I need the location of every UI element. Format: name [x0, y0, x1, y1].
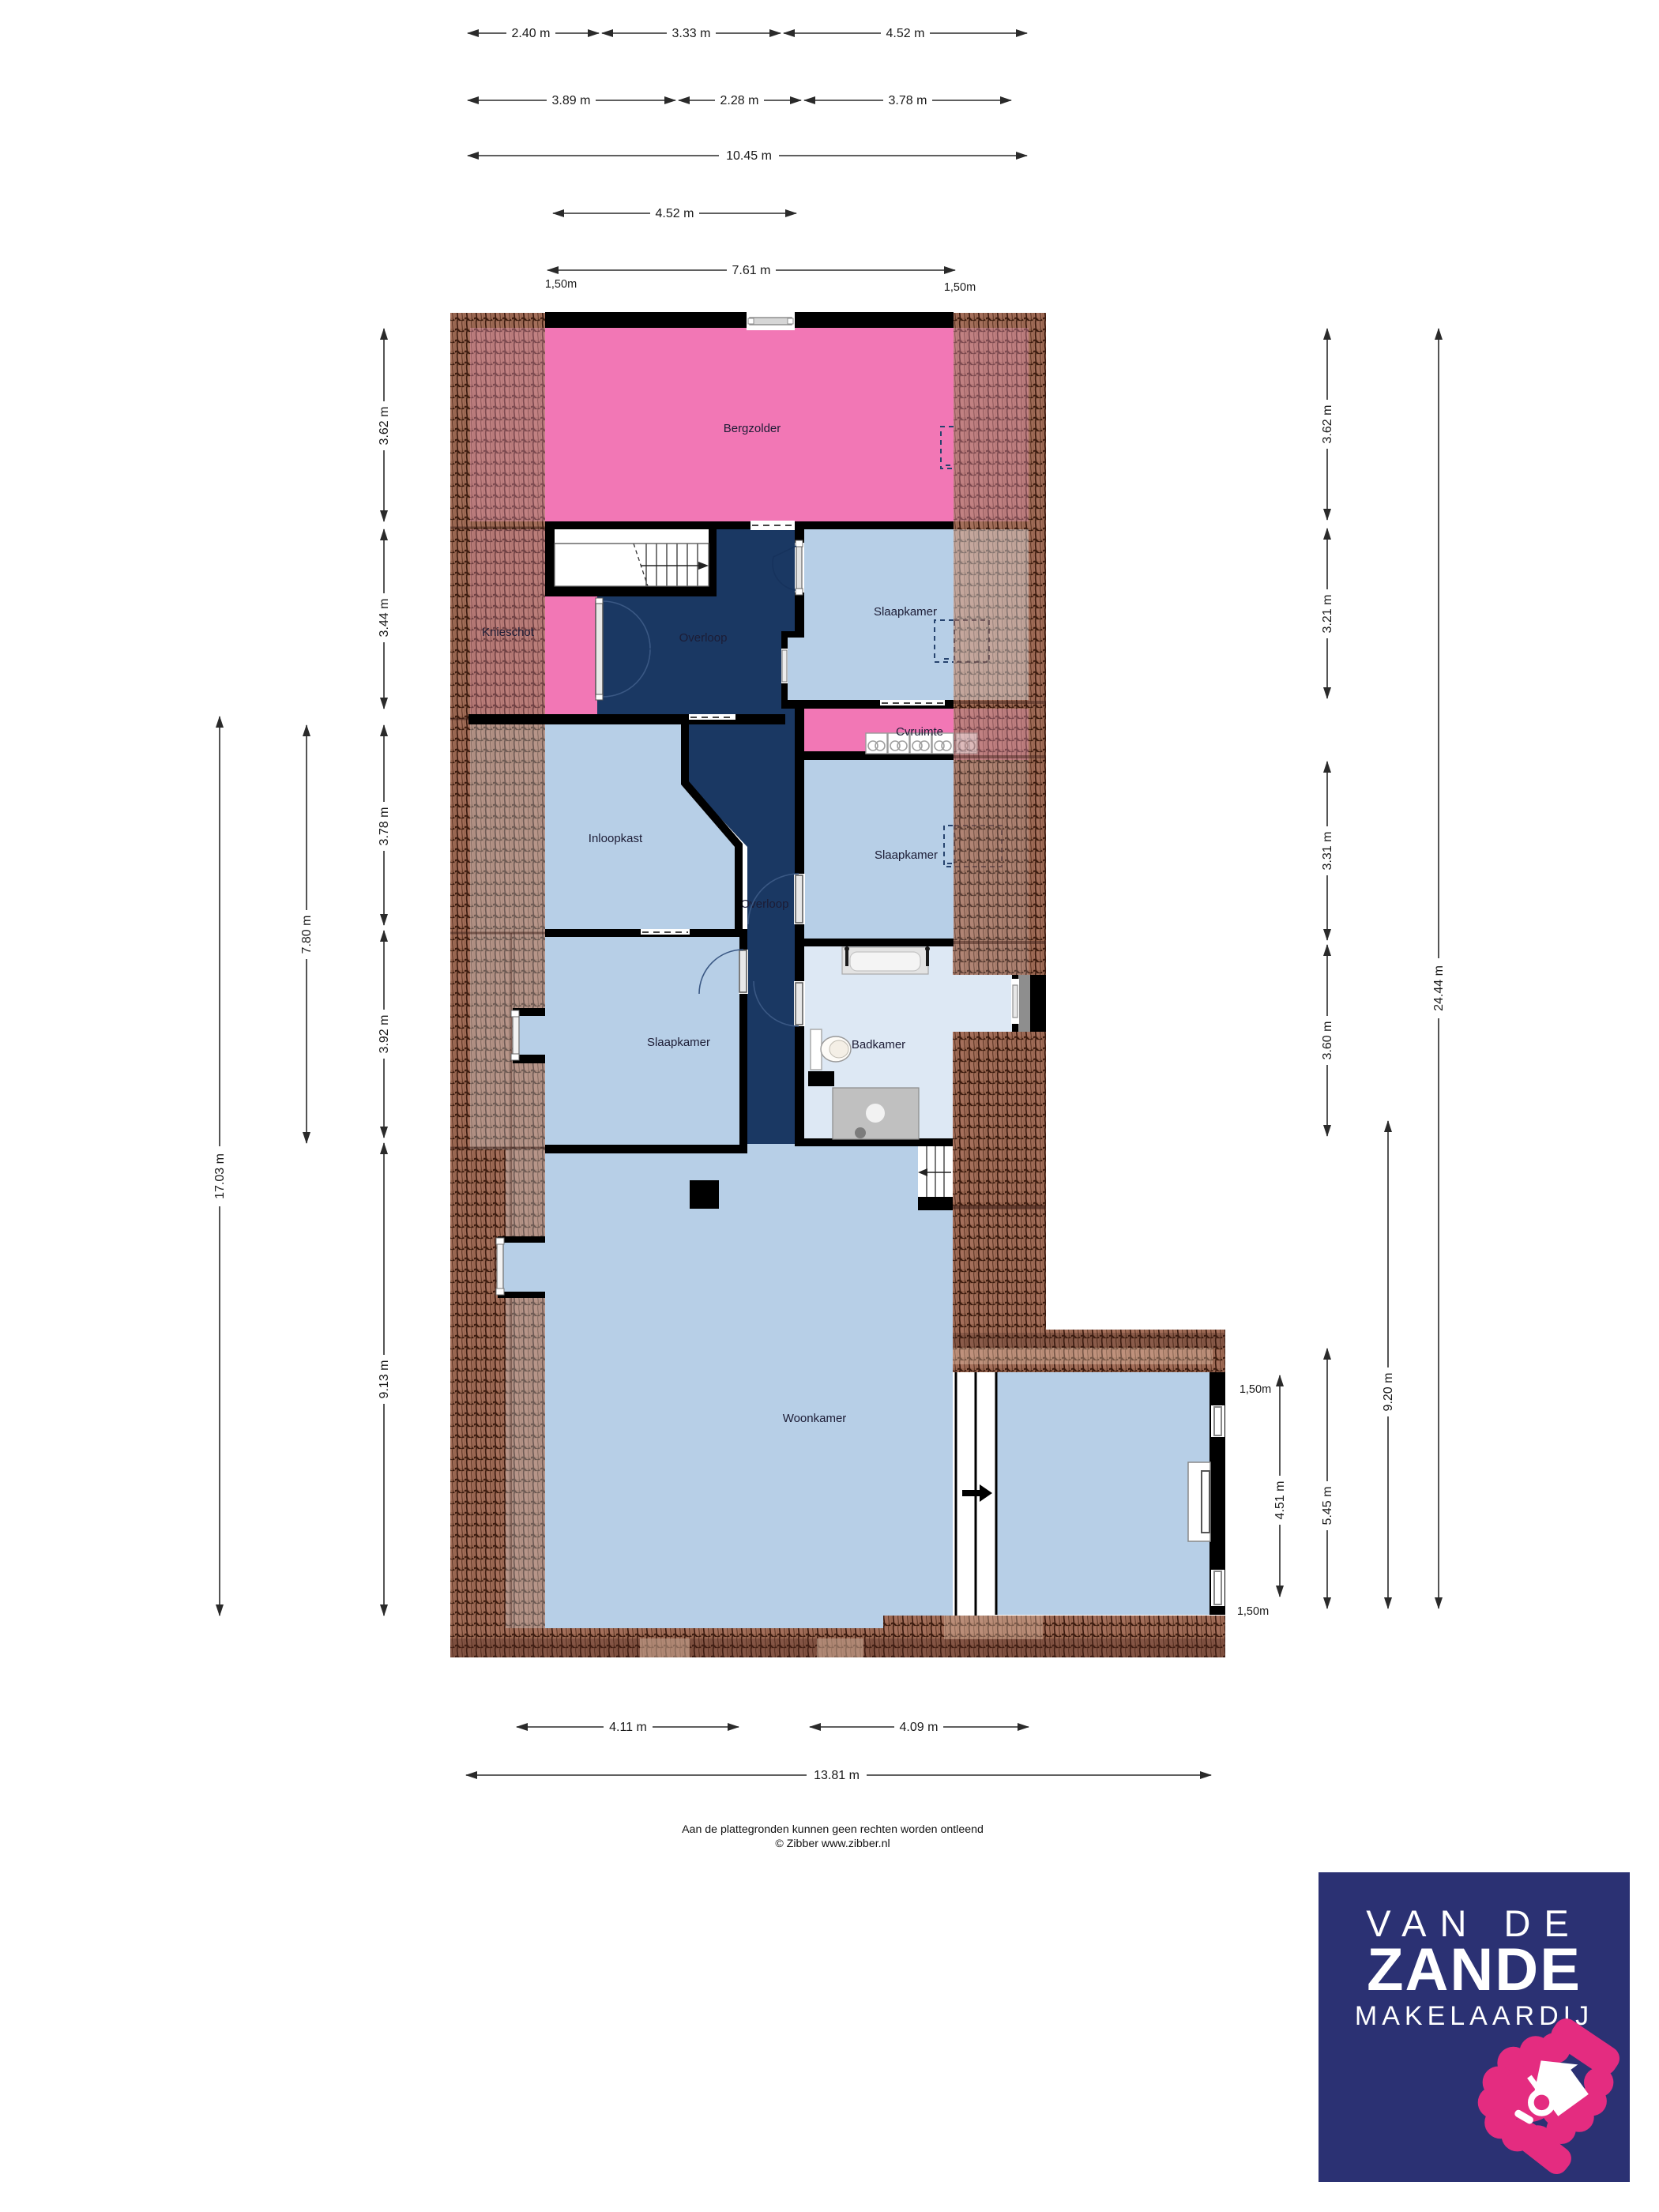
svg-text:10.45 m: 10.45 m [726, 149, 772, 163]
svg-text:7.80 m: 7.80 m [300, 916, 314, 954]
svg-text:3.60 m: 3.60 m [1321, 1021, 1334, 1060]
svg-text:Badkamer: Badkamer [852, 1038, 905, 1051]
svg-text:4.09 m: 4.09 m [900, 1721, 939, 1734]
svg-text:24.44 m: 24.44 m [1432, 965, 1446, 1011]
svg-text:Knieschot: Knieschot [482, 626, 535, 639]
svg-text:Slaapkamer: Slaapkamer [875, 848, 938, 862]
svg-text:3.78 m: 3.78 m [889, 94, 927, 107]
svg-text:Slaapkamer: Slaapkamer [647, 1036, 710, 1049]
svg-text:1,50m: 1,50m [1237, 1605, 1269, 1618]
svg-text:3.92 m: 3.92 m [378, 1015, 391, 1054]
svg-text:17.03 m: 17.03 m [213, 1153, 227, 1199]
svg-text:Woonkamer: Woonkamer [783, 1412, 847, 1425]
svg-text:© Zibber www.zibber.nl: © Zibber www.zibber.nl [775, 1838, 890, 1850]
svg-text:ZANDE: ZANDE [1367, 1936, 1582, 2003]
svg-text:Inloopkast: Inloopkast [589, 832, 643, 845]
svg-text:Aan de plattegronden kunnen ge: Aan de plattegronden kunnen geen rechten… [682, 1823, 984, 1836]
svg-text:3.33 m: 3.33 m [672, 27, 711, 40]
svg-text:3.21 m: 3.21 m [1321, 595, 1334, 634]
svg-text:Overloop: Overloop [679, 631, 728, 645]
svg-text:3.62 m: 3.62 m [378, 407, 391, 446]
svg-text:1,50m: 1,50m [545, 278, 577, 291]
svg-text:4.51 m: 4.51 m [1273, 1481, 1287, 1520]
svg-text:3.31 m: 3.31 m [1321, 832, 1334, 871]
svg-text:7.61 m: 7.61 m [732, 264, 771, 277]
svg-text:3.44 m: 3.44 m [378, 599, 391, 638]
svg-text:Slaapkamer: Slaapkamer [874, 605, 937, 619]
svg-text:13.81 m: 13.81 m [814, 1769, 860, 1782]
svg-text:Cvruimte: Cvruimte [896, 725, 943, 739]
svg-text:5.45 m: 5.45 m [1321, 1487, 1334, 1525]
svg-text:4.52 m: 4.52 m [886, 27, 925, 40]
svg-text:4.11 m: 4.11 m [609, 1721, 647, 1734]
svg-text:2.28 m: 2.28 m [720, 94, 759, 107]
svg-text:1,50m: 1,50m [1240, 1383, 1271, 1396]
svg-text:2.40 m: 2.40 m [512, 27, 551, 40]
svg-text:3.89 m: 3.89 m [552, 94, 591, 107]
svg-text:Bergzolder: Bergzolder [724, 422, 781, 435]
svg-text:9.20 m: 9.20 m [1382, 1373, 1395, 1412]
svg-text:3.78 m: 3.78 m [378, 807, 391, 846]
svg-text:Overloop: Overloop [741, 897, 789, 911]
svg-text:1,50m: 1,50m [944, 281, 976, 294]
svg-text:9.13 m: 9.13 m [378, 1360, 391, 1399]
svg-text:4.52 m: 4.52 m [656, 207, 694, 220]
svg-text:3.62 m: 3.62 m [1321, 405, 1334, 444]
